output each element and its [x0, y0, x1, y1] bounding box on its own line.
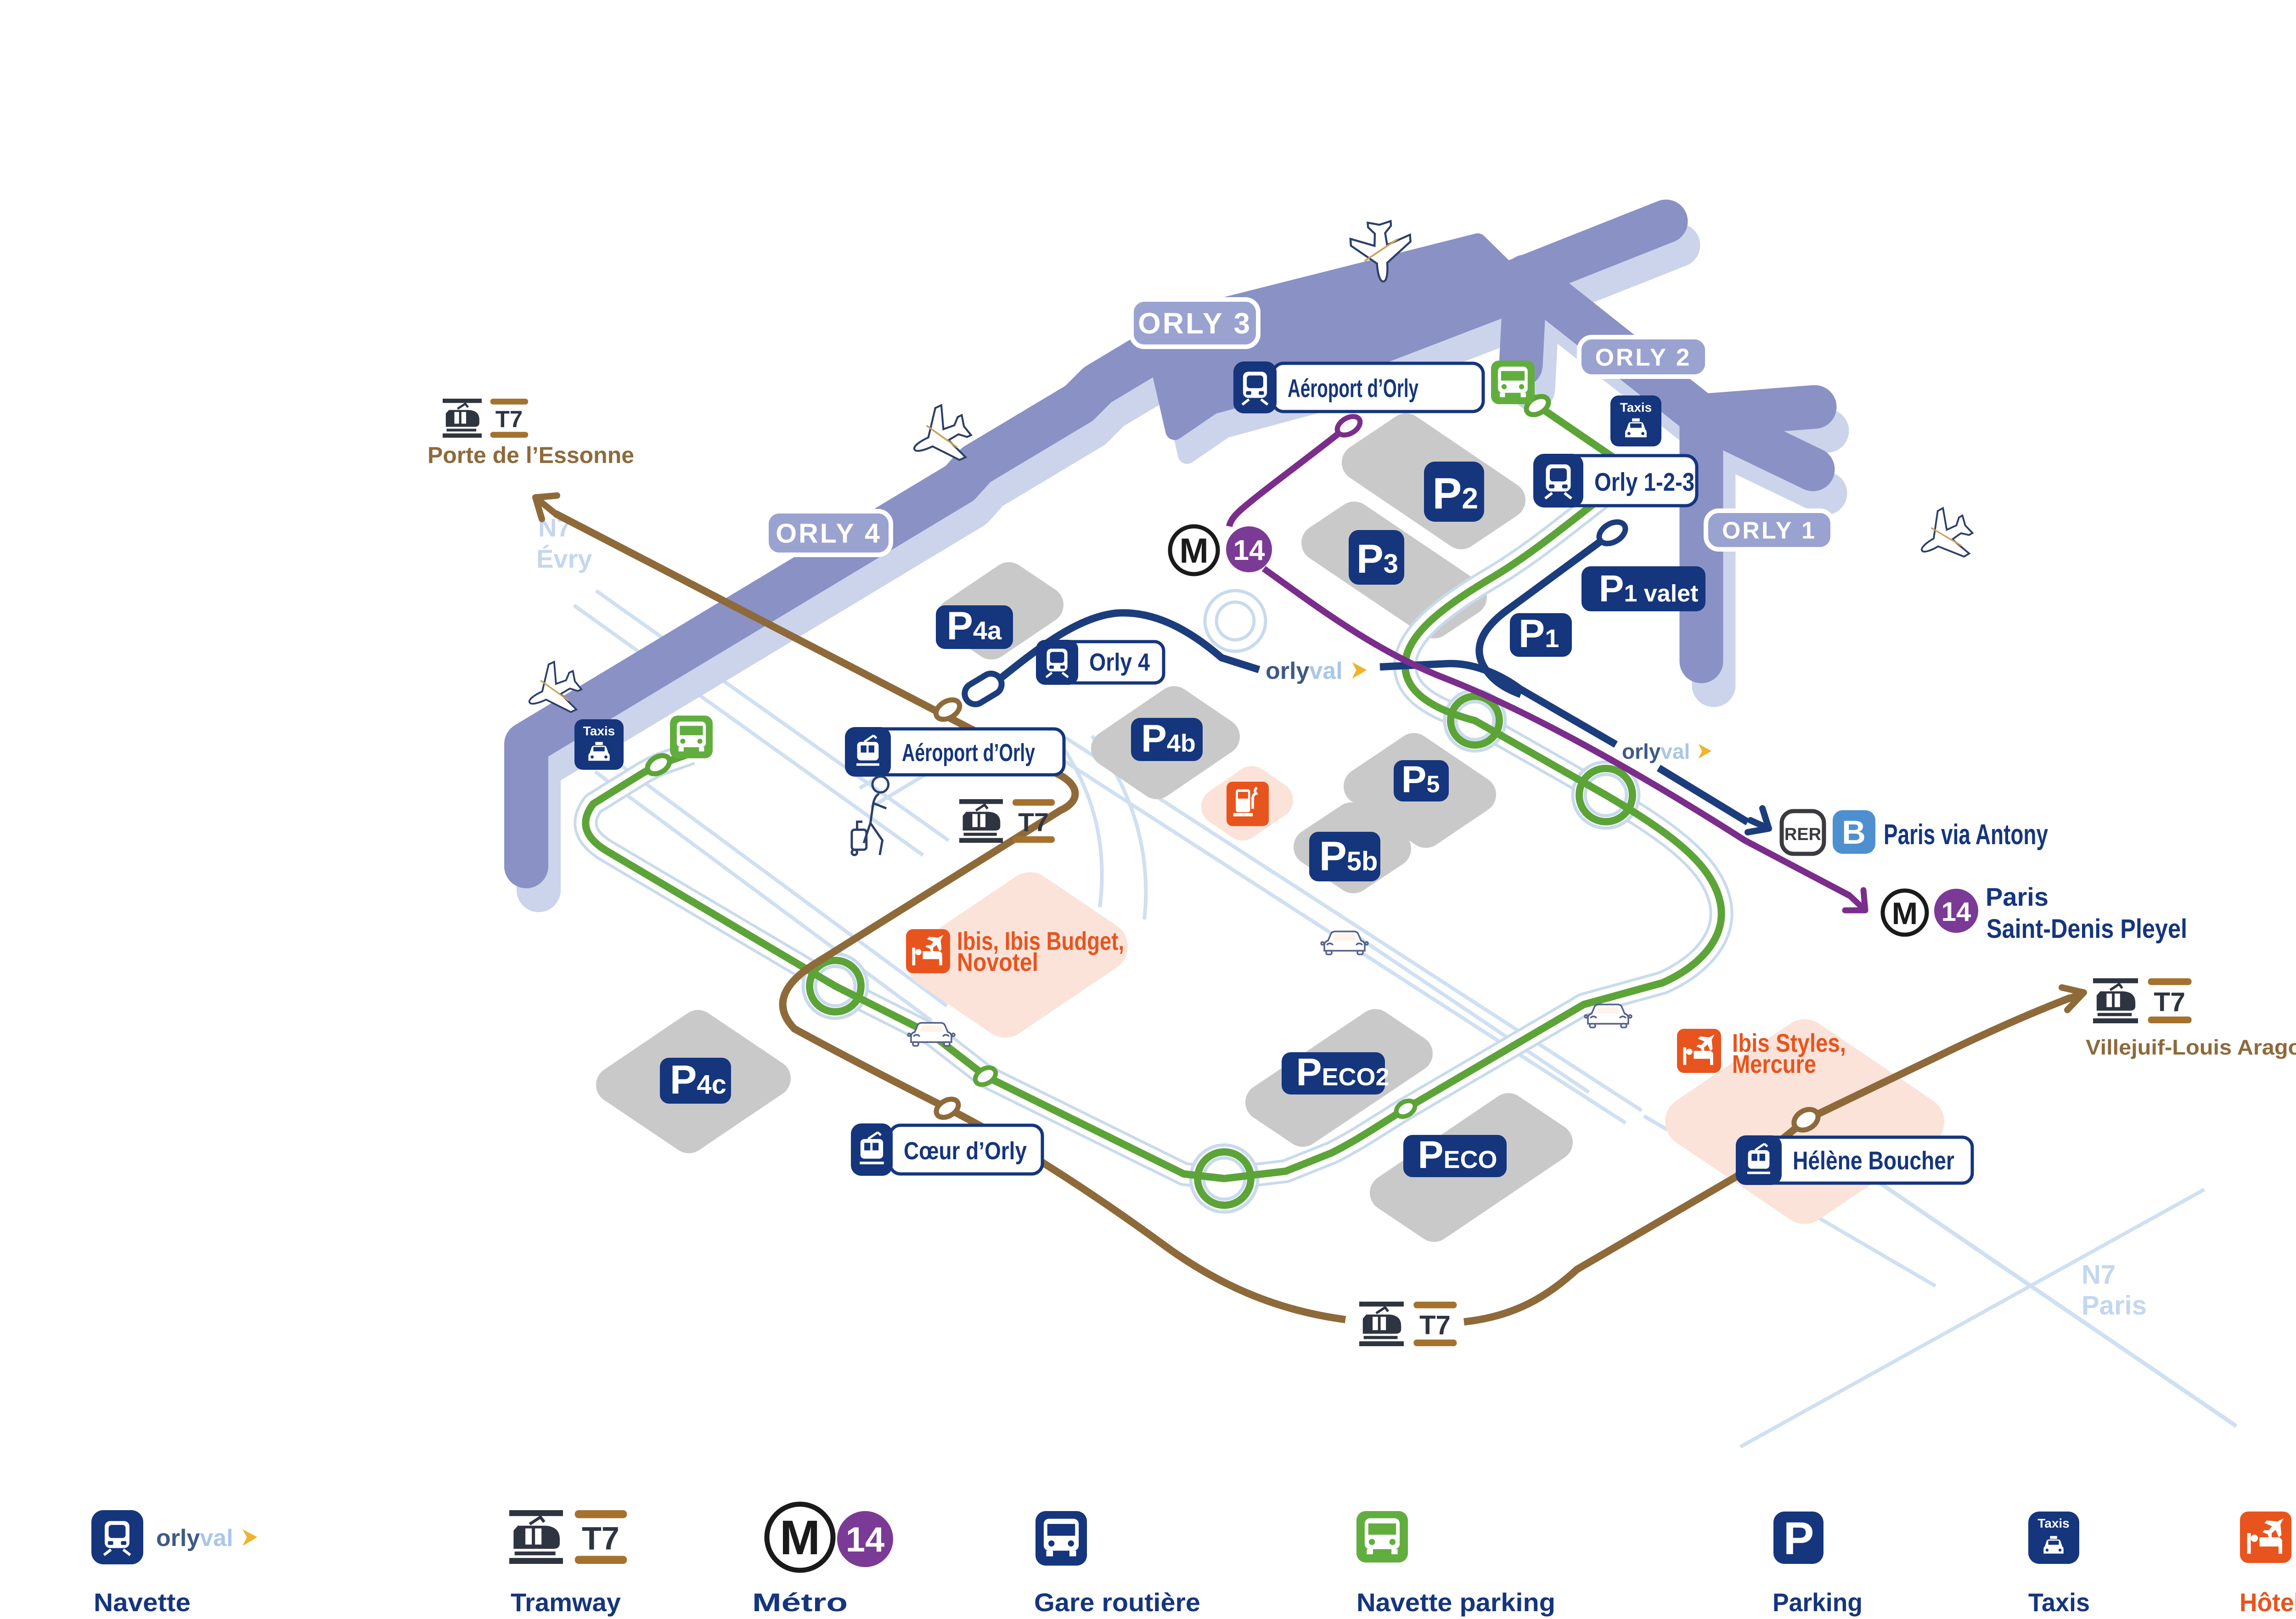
- svg-text:Métro: Métro: [752, 1588, 848, 1617]
- svg-text:Taxis: Taxis: [1620, 401, 1652, 415]
- svg-text:ORLY 2: ORLY 2: [1595, 344, 1692, 371]
- svg-text:Tramway: Tramway: [511, 1588, 621, 1617]
- svg-text:T7: T7: [2154, 987, 2185, 1017]
- svg-text:Paris: Paris: [1986, 882, 2048, 911]
- svg-text:Navette: Navette: [94, 1588, 191, 1617]
- svg-text:Porte de l’Essonne: Porte de l’Essonne: [428, 442, 634, 468]
- svg-text:Aéroport d’Orly: Aéroport d’Orly: [902, 739, 1035, 767]
- svg-text:Cœur d’Orly: Cœur d’Orly: [904, 1137, 1027, 1165]
- svg-text:Orly 1-2-3: Orly 1-2-3: [1594, 467, 1694, 496]
- svg-text:Évry: Évry: [536, 544, 592, 573]
- svg-text:Hôtels: Hôtels: [2240, 1588, 2296, 1617]
- svg-text:Parking: Parking: [1773, 1588, 1863, 1617]
- svg-text:Saint-Denis Pleyel: Saint-Denis Pleyel: [1986, 914, 2187, 944]
- svg-text:orlyval: orlyval: [1266, 658, 1343, 684]
- svg-text:orlyval: orlyval: [1622, 739, 1690, 763]
- svg-text:ORLY 1: ORLY 1: [1722, 517, 1817, 544]
- svg-text:T7: T7: [1018, 807, 1049, 837]
- svg-text:M: M: [1179, 531, 1208, 570]
- svg-text:M: M: [1892, 896, 1918, 931]
- svg-text:14: 14: [846, 1520, 885, 1559]
- svg-text:RER: RER: [1784, 825, 1821, 844]
- svg-text:Taxis: Taxis: [2028, 1588, 2090, 1617]
- svg-text:T7: T7: [495, 406, 523, 432]
- svg-text:Taxis: Taxis: [2037, 1516, 2070, 1530]
- svg-text:Gare routière: Gare routière: [1034, 1588, 1200, 1617]
- svg-text:ORLY 4: ORLY 4: [776, 518, 882, 548]
- svg-text:Villejuif-Louis Aragon: Villejuif-Louis Aragon: [2086, 1035, 2296, 1059]
- svg-text:14: 14: [1941, 897, 1971, 927]
- svg-text:Navette parking: Navette parking: [1356, 1588, 1555, 1617]
- svg-text:Paris via Antony: Paris via Antony: [1884, 819, 2048, 851]
- svg-text:Taxis: Taxis: [583, 724, 615, 738]
- svg-text:Orly 4: Orly 4: [1089, 649, 1150, 676]
- svg-text:M: M: [780, 1511, 820, 1565]
- svg-text:Paris: Paris: [2082, 1291, 2147, 1320]
- svg-text:Aéroport d’Orly: Aéroport d’Orly: [1288, 374, 1418, 403]
- svg-text:14: 14: [1233, 535, 1265, 566]
- svg-text:ORLY 3: ORLY 3: [1138, 307, 1252, 340]
- svg-text:Mercure: Mercure: [1732, 1049, 1816, 1078]
- svg-text:B: B: [1842, 814, 1866, 851]
- svg-text:P: P: [1784, 1513, 1814, 1564]
- svg-text:T7: T7: [1419, 1310, 1451, 1340]
- svg-text:Hélène Boucher: Hélène Boucher: [1793, 1146, 1954, 1175]
- svg-text:T7: T7: [582, 1520, 619, 1556]
- svg-text:Novotel: Novotel: [957, 948, 1038, 976]
- svg-text:orlyval: orlyval: [156, 1525, 233, 1551]
- svg-text:N7: N7: [2082, 1260, 2116, 1290]
